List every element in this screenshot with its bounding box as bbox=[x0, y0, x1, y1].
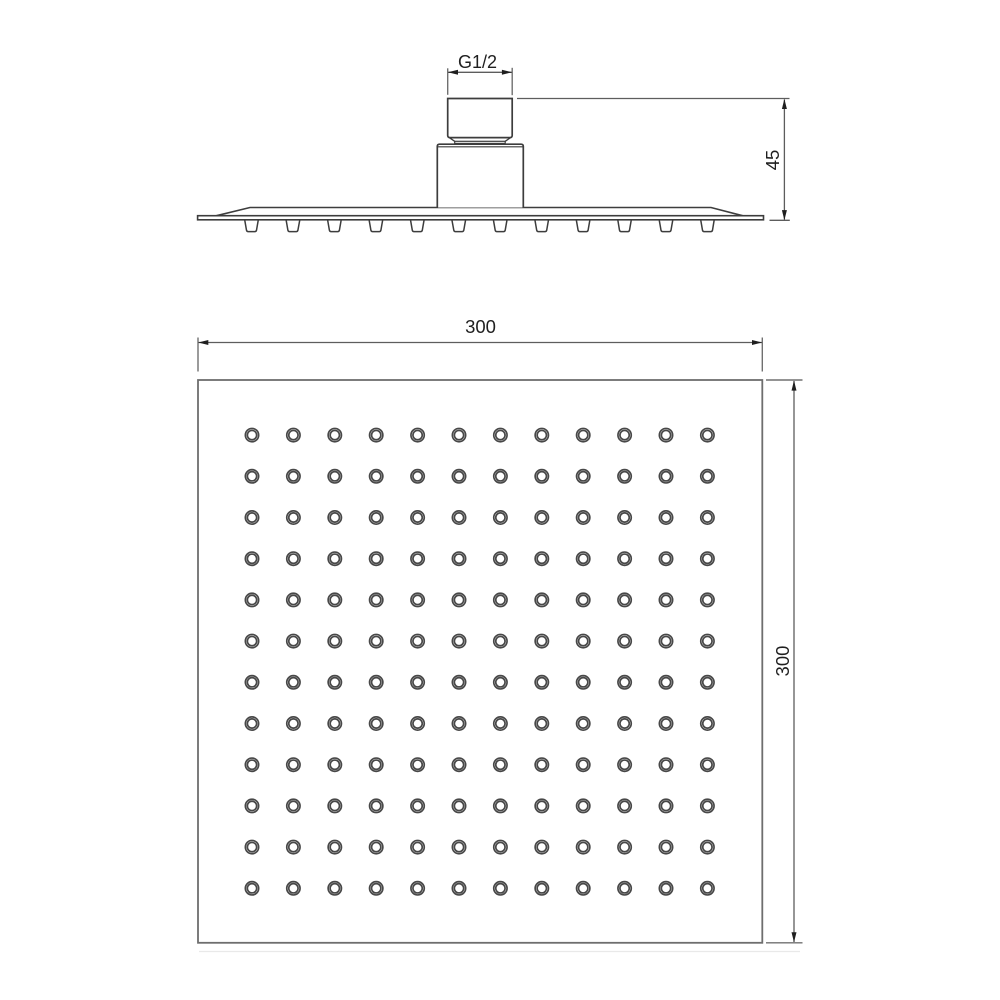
svg-text:45: 45 bbox=[762, 150, 783, 171]
svg-text:300: 300 bbox=[465, 316, 496, 337]
svg-text:300: 300 bbox=[772, 646, 793, 677]
svg-text:G1/2: G1/2 bbox=[458, 52, 497, 72]
